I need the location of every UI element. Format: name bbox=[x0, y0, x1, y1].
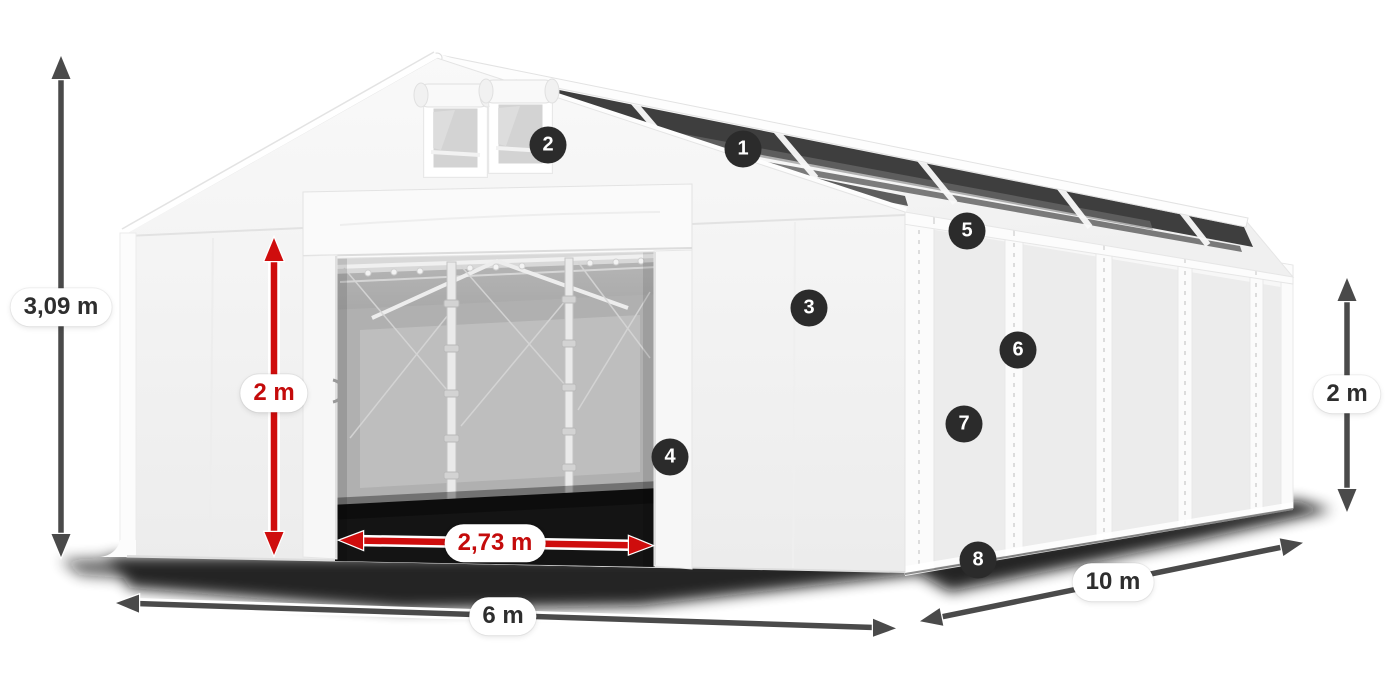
hotspot-marker-5[interactable]: 5 bbox=[949, 213, 986, 250]
tent-illustration bbox=[0, 0, 1400, 700]
hotspot-marker-3[interactable]: 3 bbox=[791, 290, 828, 327]
hotspot-marker-7[interactable]: 7 bbox=[946, 406, 983, 443]
hotspot-marker-1[interactable]: 1 bbox=[725, 131, 762, 168]
dimension-label-door-width: 2,73 m bbox=[445, 524, 546, 562]
dimension-label-side-length: 10 m bbox=[1073, 563, 1154, 601]
dimension-label-door-height: 2 m bbox=[240, 374, 307, 412]
hotspot-marker-4[interactable]: 4 bbox=[652, 439, 689, 476]
door-interior bbox=[330, 244, 660, 570]
dimension-label-total-height: 3,09 m bbox=[11, 288, 112, 326]
dimension-label-front-width: 6 m bbox=[469, 597, 536, 635]
tent-dimension-diagram: 3,09 m 2 m 2,73 m 6 m 10 m 2 m 1 2 3 4 5… bbox=[0, 0, 1400, 700]
gable-windows bbox=[414, 79, 559, 178]
hotspot-marker-2[interactable]: 2 bbox=[530, 127, 567, 164]
hotspot-marker-8[interactable]: 8 bbox=[960, 542, 997, 579]
dimension-label-side-height: 2 m bbox=[1313, 375, 1380, 413]
hotspot-marker-6[interactable]: 6 bbox=[1000, 332, 1037, 369]
